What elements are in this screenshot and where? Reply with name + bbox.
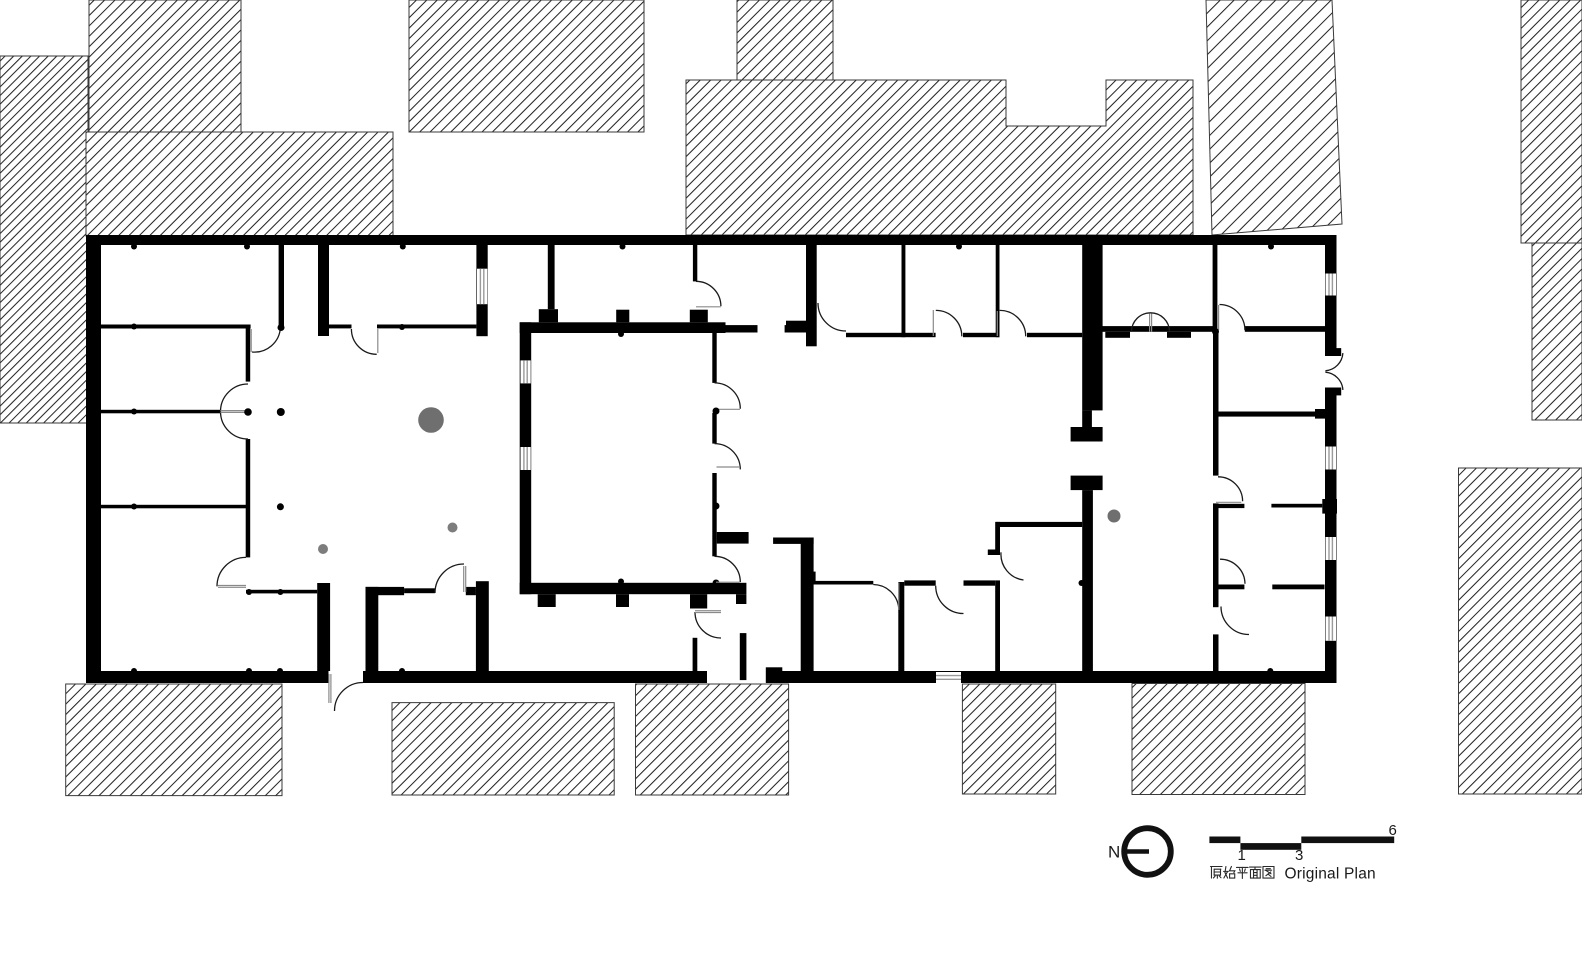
svg-text:N: N <box>1108 843 1120 862</box>
svg-text:Original Plan: Original Plan <box>1285 866 1376 883</box>
svg-text:1: 1 <box>1238 847 1246 864</box>
svg-text:3: 3 <box>1295 847 1303 864</box>
svg-text:6: 6 <box>1389 822 1397 839</box>
